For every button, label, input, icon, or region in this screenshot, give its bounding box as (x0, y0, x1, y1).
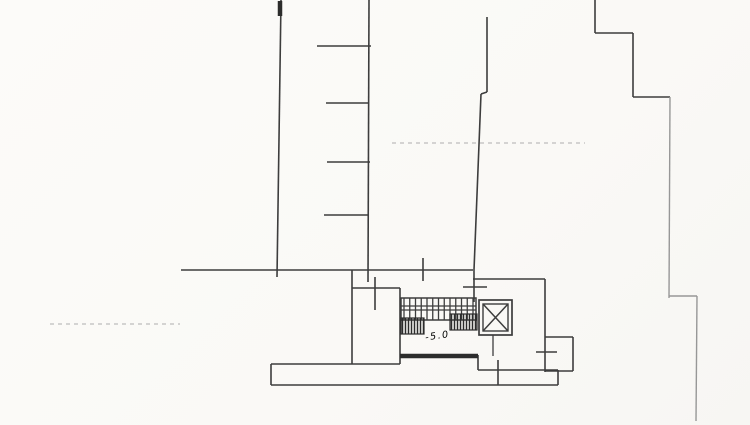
walls-thick (280, 1, 478, 356)
scanned-floor-plan-page: -5.0 (0, 0, 750, 425)
guides-dashed (50, 143, 585, 324)
level-annotation: -5.0 (425, 329, 451, 343)
elevator-shaft (479, 300, 512, 356)
floor-plan-svg: -5.0 (0, 0, 750, 425)
walls-dark (181, 0, 670, 385)
wall-lines-layer (50, 0, 697, 421)
walls-light (669, 97, 697, 421)
stairs (401, 298, 477, 334)
